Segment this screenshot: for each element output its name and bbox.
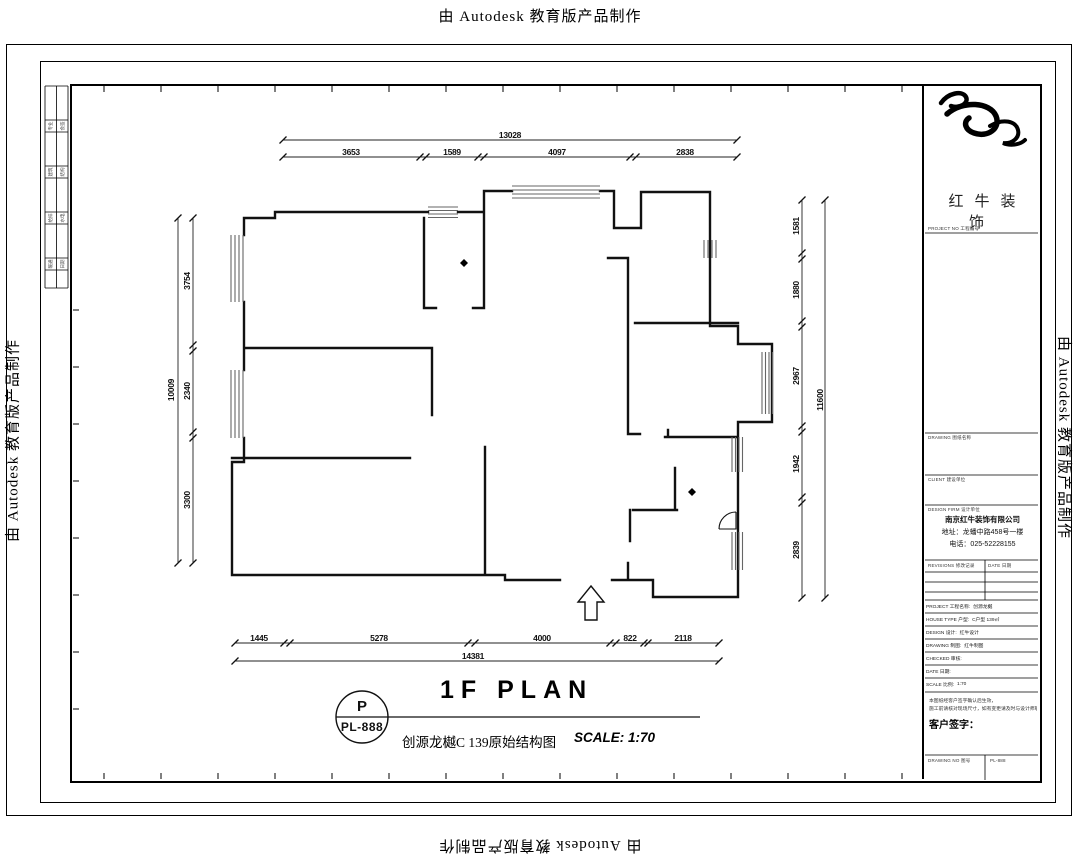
dim-top-total: 13028 xyxy=(495,130,525,140)
dim-top-seg: 2838 xyxy=(670,147,700,157)
field-label: CHECKED 审核: xyxy=(926,655,962,662)
field-label: PROJECT 工程名称: xyxy=(926,603,970,610)
tb-note: 施工前请核对现场尺寸，如有变更请及时与设计师联系。 xyxy=(929,705,1037,712)
tb-field-row: DRAWING 制图: 红牛制图 xyxy=(926,639,1038,652)
tb-field-row: HOUSE TYPE 户型: C户型 139㎡ xyxy=(926,613,1038,626)
tb-footer-left: DRAWING NO 图号 xyxy=(928,758,970,764)
tb-field-row: PROJECT 工程名称: 创源龙樾 xyxy=(926,600,1038,613)
signature-label: 客户签字： xyxy=(929,716,979,731)
dim-left-seg: 3300 xyxy=(182,480,192,520)
dim-bottom-total: 14381 xyxy=(458,651,488,661)
dim-right-seg: 2967 xyxy=(791,356,801,396)
dim-left-seg: 2340 xyxy=(182,371,192,411)
tb-section-project-no: PROJECT NO 工程编号 xyxy=(928,226,979,232)
company-address: 地址：龙蟠中路458号一楼 xyxy=(925,527,1040,537)
field-label: DESIGN 设计: xyxy=(926,629,957,636)
tb-note: 本图纸经客户签字确认后生效， xyxy=(929,697,1037,704)
field-label: DRAWING 制图: xyxy=(926,642,961,649)
company-phone: 电话：025-52228155 xyxy=(925,539,1040,549)
dim-top-seg: 4097 xyxy=(542,147,572,157)
dim-bottom-seg: 5278 xyxy=(364,633,394,643)
scale-label: SCALE: 1:70 xyxy=(574,730,655,745)
tb-field-row: DESIGN 设计: 红牛设计 xyxy=(926,626,1038,639)
titleblock-separator xyxy=(922,84,924,779)
tb-revisions-header: REVISIONS 修改记录 xyxy=(928,563,975,569)
dim-top-seg: 3653 xyxy=(336,147,366,157)
field-value: C户型 139㎡ xyxy=(972,616,999,623)
tb-field-row: SCALE 比例: 1:70 xyxy=(926,678,1038,691)
dim-right-total: 11600 xyxy=(815,380,825,420)
tag-number: PL-888 xyxy=(330,720,394,734)
tb-section-drawing: DRAWING 图纸名称 xyxy=(928,435,971,441)
company-name: 南京红牛装饰有限公司 xyxy=(925,514,1040,525)
dim-right-seg: 2839 xyxy=(791,530,801,570)
dim-left-total: 10009 xyxy=(166,370,176,410)
watermark-bottom: 由 Autodesk 教育版产品制作 xyxy=(0,836,1080,857)
tb-section-client: CLIENT 建设单位 xyxy=(928,477,965,483)
dim-right-seg: 1880 xyxy=(791,270,801,310)
drawing-name: 创源龙樾C 139原始结构图 xyxy=(402,731,556,751)
dim-left-seg: 3754 xyxy=(182,261,192,301)
tb-footer-right: PL-888 xyxy=(990,758,1006,763)
dim-right-seg: 1581 xyxy=(791,206,801,246)
dim-bottom-seg: 4000 xyxy=(527,633,557,643)
drawing-sheet: 由 Autodesk 教育版产品制作 由 Autodesk 教育版产品制作 由 … xyxy=(0,0,1080,864)
tb-section-design-firm: DESIGN FIRM 设计单位 xyxy=(928,507,980,513)
dim-bottom-seg: 822 xyxy=(615,633,645,643)
page-title: 1F PLAN xyxy=(440,676,593,705)
watermark-top: 由 Autodesk 教育版产品制作 xyxy=(0,5,1080,26)
field-value: 红牛制图 xyxy=(964,642,983,649)
dim-bottom-seg: 2118 xyxy=(668,633,698,643)
dim-top-seg: 1589 xyxy=(437,147,467,157)
field-value: 红牛设计 xyxy=(960,629,979,636)
field-value: 1:70 xyxy=(957,682,966,687)
field-label: DATE 日期: xyxy=(926,668,951,675)
tb-field-row: DATE 日期: xyxy=(926,665,1038,678)
field-label: SCALE 比例: xyxy=(926,681,954,688)
tb-rev-date-header: DATE 日期 xyxy=(988,563,1011,569)
tag-letter: P xyxy=(342,698,382,715)
dim-right-seg: 1942 xyxy=(791,444,801,484)
field-label: HOUSE TYPE 户型: xyxy=(926,616,969,623)
dim-bottom-seg: 1445 xyxy=(244,633,274,643)
tb-field-row: CHECKED 审核: xyxy=(926,652,1038,665)
field-value: 创源龙樾 xyxy=(973,603,992,610)
